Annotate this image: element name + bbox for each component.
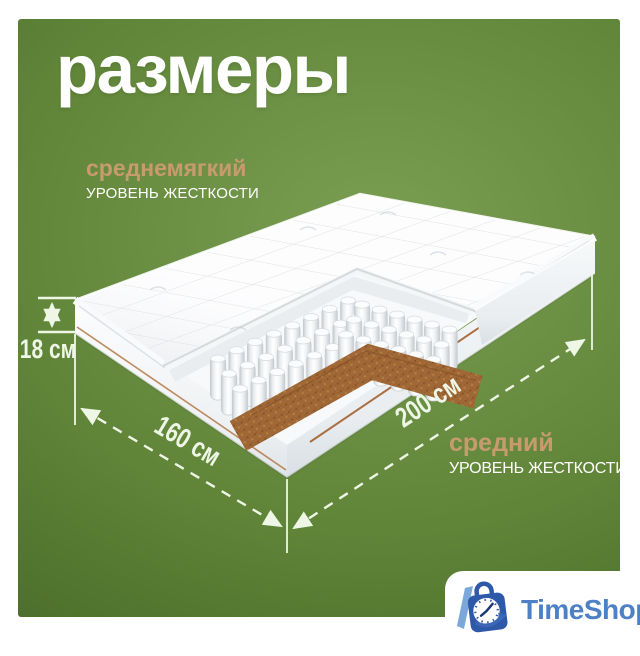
firmness-bottom-level: средний <box>449 431 627 456</box>
firmness-top-block: среднемягкий УРОВЕНЬ ЖЕСТКОСТИ <box>86 157 259 201</box>
firmness-bottom-caption: УРОВЕНЬ ЖЕСТКОСТИ <box>449 461 627 477</box>
timeshop-logo: TimeShop <box>445 571 640 656</box>
height-dimension-label: 18 см <box>20 335 76 365</box>
clock-shopping-bag-icon <box>455 581 517 639</box>
page-title: размеры <box>56 30 350 109</box>
firmness-bottom-block: средний УРОВЕНЬ ЖЕСТКОСТИ <box>449 431 627 477</box>
firmness-top-caption: УРОВЕНЬ ЖЕСТКОСТИ <box>86 186 259 201</box>
firmness-top-level: среднемягкий <box>86 157 259 180</box>
timeshop-logo-text: TimeShop <box>521 594 640 626</box>
